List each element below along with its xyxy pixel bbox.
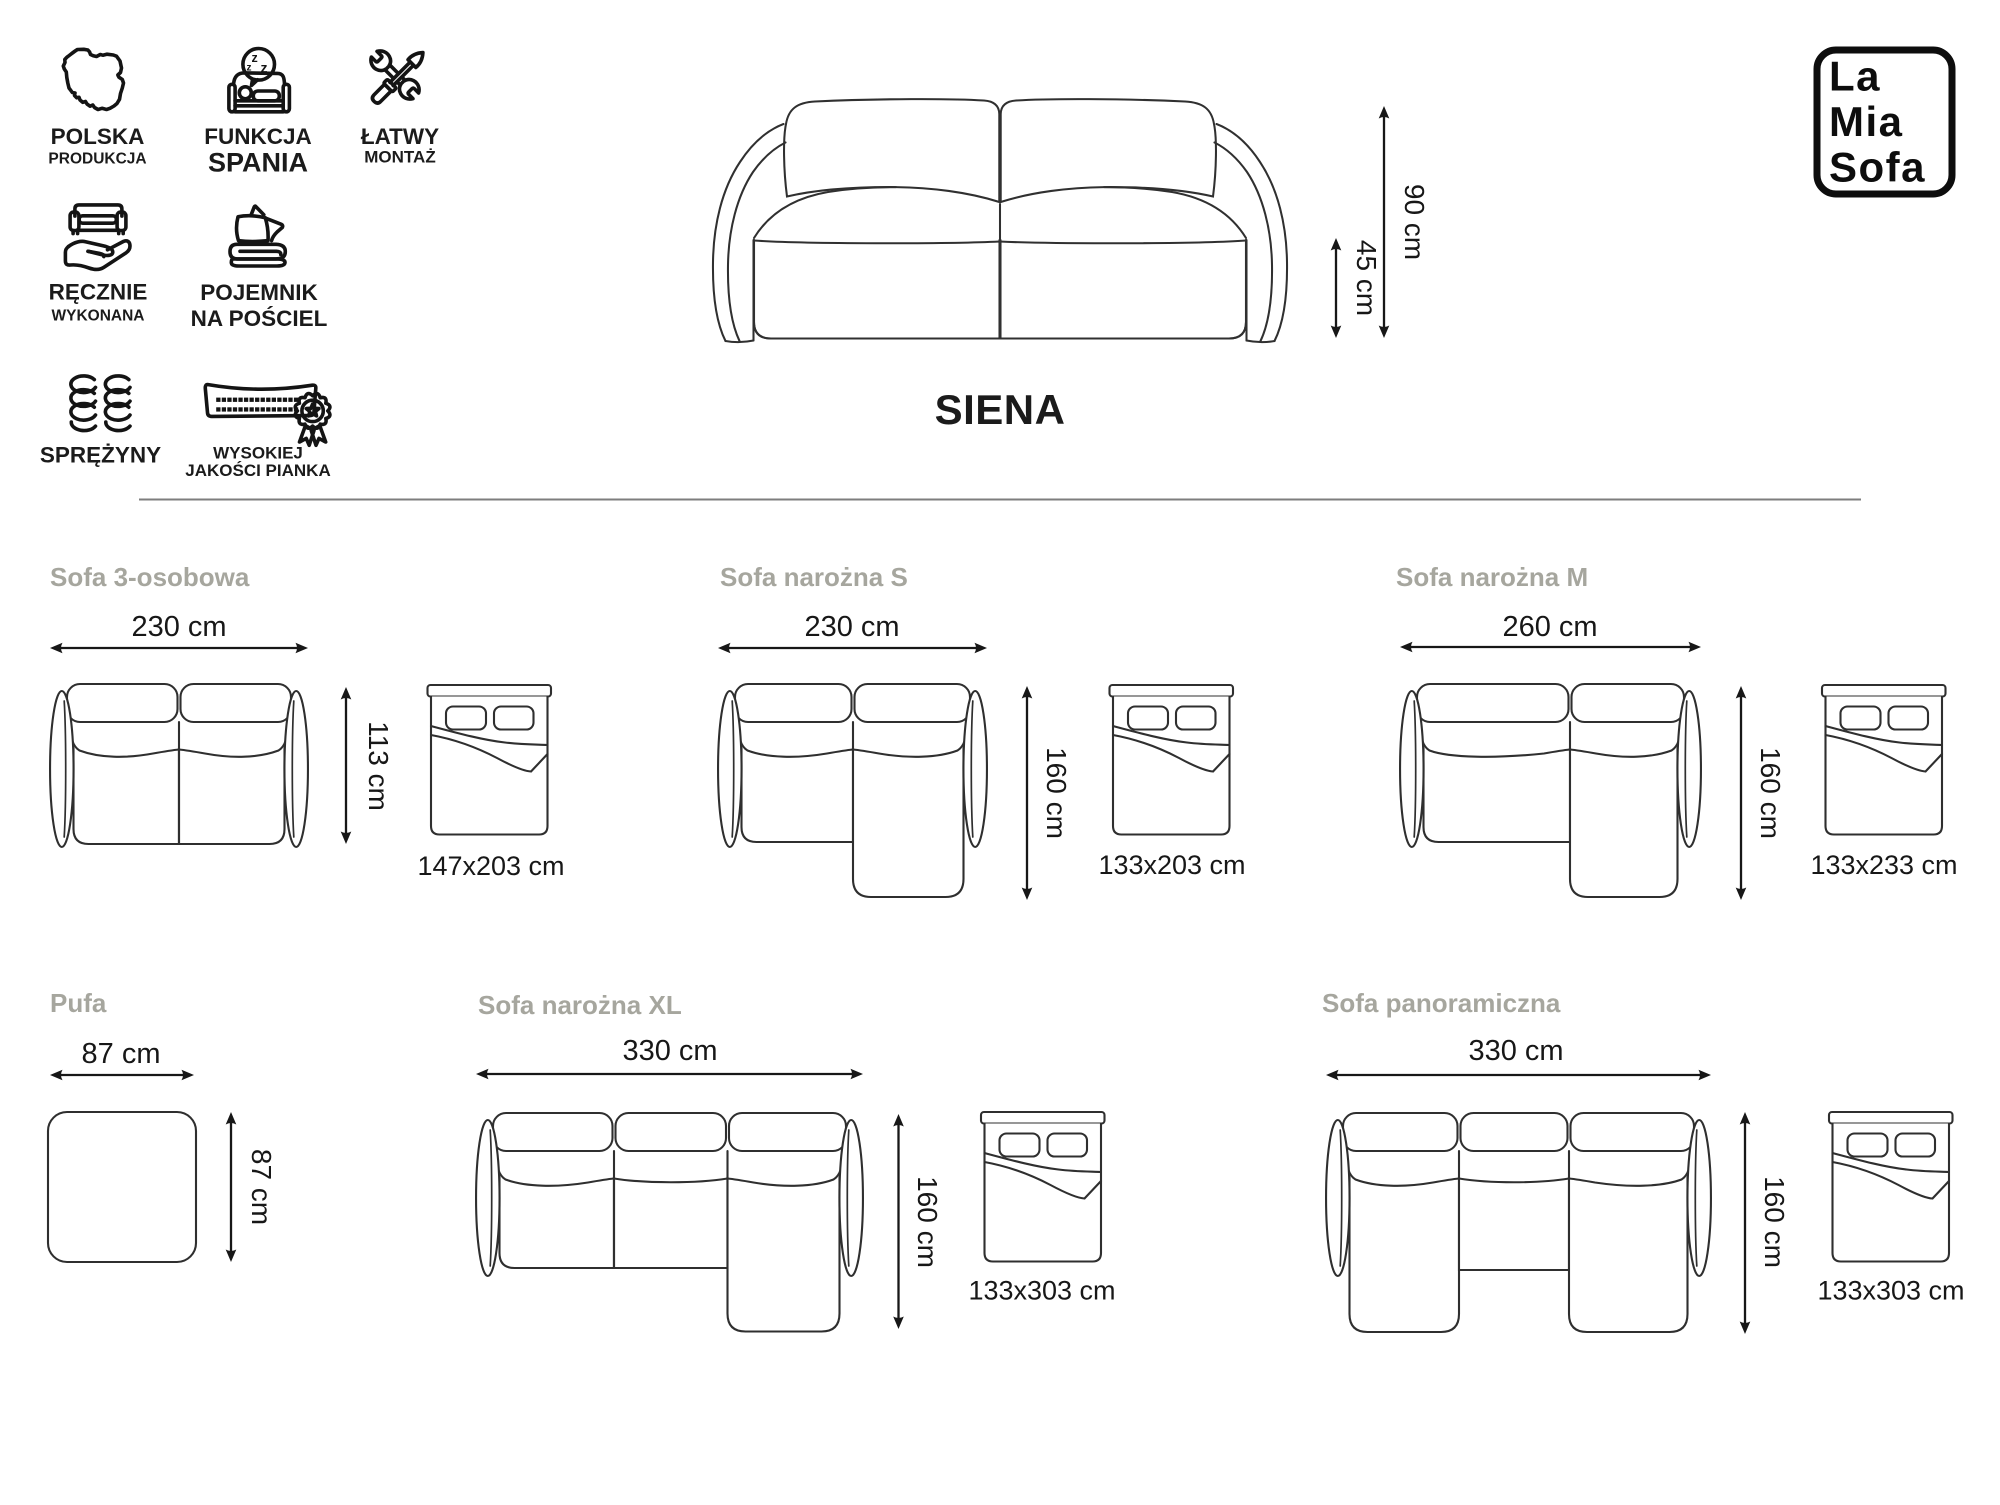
svg-text:SIENA: SIENA	[935, 386, 1066, 433]
svg-text:FUNKCJA: FUNKCJA	[204, 124, 312, 149]
svg-text:RĘCZNIE: RĘCZNIE	[49, 280, 148, 305]
svg-text:SPANIA: SPANIA	[208, 148, 308, 178]
svg-text:160 cm: 160 cm	[912, 1176, 943, 1268]
svg-text:ŁATWY: ŁATWY	[361, 124, 439, 149]
svg-text:La: La	[1829, 53, 1881, 100]
svg-text:POJEMNIK: POJEMNIK	[200, 280, 318, 305]
svg-text:z: z	[247, 63, 252, 74]
svg-text:133x303 cm: 133x303 cm	[1817, 1276, 1964, 1306]
svg-text:z: z	[261, 60, 268, 76]
svg-text:90 cm: 90 cm	[1399, 184, 1430, 260]
svg-text:113 cm: 113 cm	[363, 721, 394, 811]
svg-text:Sofa panoramiczna: Sofa panoramiczna	[1322, 988, 1561, 1018]
svg-text:Sofa narożna XL: Sofa narożna XL	[478, 990, 682, 1020]
svg-text:330 cm: 330 cm	[622, 1035, 717, 1067]
svg-text:45 cm: 45 cm	[1351, 240, 1382, 316]
svg-text:Sofa narożna M: Sofa narożna M	[1396, 562, 1588, 592]
svg-text:Pufa: Pufa	[50, 988, 107, 1018]
svg-text:133x233 cm: 133x233 cm	[1810, 850, 1957, 880]
svg-text:JAKOŚCI PIANKA: JAKOŚCI PIANKA	[185, 461, 330, 480]
svg-text:POLSKA: POLSKA	[51, 124, 145, 149]
svg-text:87 cm: 87 cm	[82, 1038, 161, 1070]
svg-text:PRODUKCJA: PRODUKCJA	[48, 151, 146, 168]
svg-text:87 cm: 87 cm	[246, 1149, 277, 1225]
svg-text:160 cm: 160 cm	[1759, 1176, 1790, 1268]
svg-text:WYSOKIEJ: WYSOKIEJ	[213, 444, 303, 463]
svg-text:z: z	[252, 51, 258, 65]
svg-text:147x203 cm: 147x203 cm	[417, 851, 564, 881]
svg-text:133x303 cm: 133x303 cm	[968, 1276, 1115, 1306]
svg-text:160 cm: 160 cm	[1041, 747, 1072, 839]
svg-text:160 cm: 160 cm	[1755, 747, 1786, 839]
svg-text:SPRĘŻYNY: SPRĘŻYNY	[40, 443, 161, 468]
svg-text:Mia: Mia	[1829, 98, 1904, 145]
svg-text:260 cm: 260 cm	[1502, 611, 1597, 643]
svg-text:NA POŚCIEL: NA POŚCIEL	[191, 306, 328, 331]
svg-text:Sofa: Sofa	[1829, 144, 1926, 191]
svg-text:230 cm: 230 cm	[804, 611, 899, 643]
svg-text:330 cm: 330 cm	[1468, 1035, 1563, 1067]
svg-text:230 cm: 230 cm	[131, 611, 226, 643]
svg-text:Sofa 3-osobowa: Sofa 3-osobowa	[50, 562, 250, 592]
svg-text:WYKONANA: WYKONANA	[52, 308, 145, 325]
svg-text:MONTAŻ: MONTAŻ	[364, 148, 435, 167]
svg-text:133x203 cm: 133x203 cm	[1098, 850, 1245, 880]
svg-text:Sofa narożna S: Sofa narożna S	[720, 562, 908, 592]
